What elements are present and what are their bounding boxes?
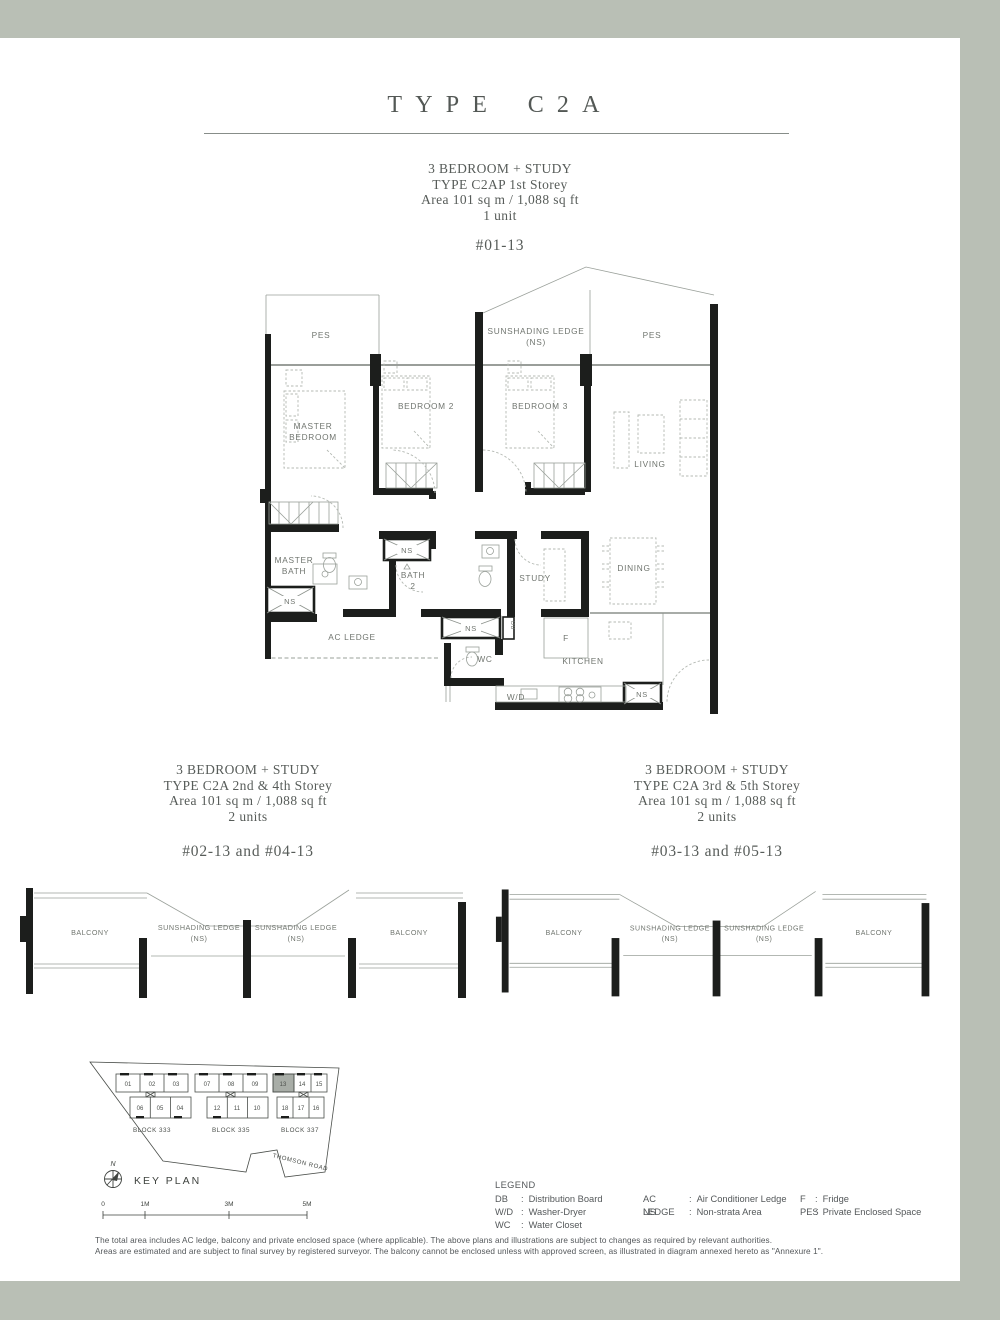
unit-02: 02 — [149, 1082, 156, 1088]
bath2-label: BATH — [401, 570, 425, 580]
top-border-band — [0, 0, 1000, 38]
unit-07: 07 — [204, 1082, 211, 1088]
balcony-diagram-3rd-5th: BALCONY SUNSHADING LEDGE (NS) SUNSHADING… — [494, 880, 941, 1000]
north-compass-icon — [105, 1171, 122, 1188]
sunshading-ledge-ns: (NS) — [756, 936, 772, 943]
legend-item-acledge: AC LEDGE : Air Conditioner Ledge — [643, 1193, 787, 1206]
washer-dryer-label: W/D — [507, 692, 525, 702]
unit-05: 05 — [157, 1106, 164, 1112]
legend-title: LEGEND — [495, 1180, 536, 1190]
floor-plan: PES SUNSHADING LEDGE (NS) PES MASTER BED… — [253, 262, 743, 737]
unit-09: 09 — [252, 1082, 259, 1088]
unit-12: 12 — [214, 1106, 221, 1112]
unit-18: 18 — [282, 1106, 289, 1112]
master-bath-label-2: BATH — [282, 566, 306, 576]
kitchen-label: KITCHEN — [562, 656, 603, 666]
master-bath-label: MASTER — [275, 555, 314, 565]
sunshading-ledge-ns: (NS) — [191, 934, 208, 943]
bottom-border-band — [0, 1281, 1000, 1320]
page-title: TYPE C2A — [0, 92, 1000, 119]
legend-item-db: DB : Distribution Board — [495, 1193, 603, 1206]
legend-separator: : — [521, 1206, 524, 1219]
unit-number-third: #03-13 and #05-13 — [567, 843, 867, 861]
legend-column-2: AC LEDGE : Air Conditioner Ledge NS : No… — [643, 1193, 787, 1219]
legend-separator: : — [521, 1219, 524, 1232]
unit-15: 15 — [316, 1082, 323, 1088]
legend-abbr: WC — [495, 1219, 521, 1232]
unit-04: 04 — [177, 1106, 184, 1112]
balcony-label: BALCONY — [390, 928, 428, 937]
scale-5m: 5M — [302, 1201, 311, 1208]
legend-item-ns: NS : Non-strata Area — [643, 1206, 787, 1219]
legend-separator: : — [689, 1206, 692, 1219]
legend-desc: Water Closet — [529, 1219, 582, 1232]
legend-column-1: DB : Distribution Board W/D : Washer-Dry… — [495, 1193, 603, 1232]
balcony-walls — [496, 889, 929, 996]
unit-11: 11 — [234, 1106, 241, 1112]
scale-3m: 3M — [224, 1201, 233, 1208]
legend-item-wc: WC : Water Closet — [495, 1219, 603, 1232]
unit-13: 13 — [280, 1082, 287, 1088]
legend-separator: : — [815, 1193, 818, 1206]
legend-desc: Fridge — [823, 1193, 849, 1206]
dining-label: DINING — [617, 563, 650, 573]
scale-1m: 1M — [140, 1201, 149, 1208]
sunshading-ledge-label: SUNSHADING LEDGE — [630, 925, 710, 932]
ac-ledge-label: AC LEDGE — [328, 632, 376, 642]
header-line: TYPE C2A 2nd & 4th Storey — [98, 778, 398, 794]
block-335-label: BLOCK 335 — [212, 1127, 250, 1134]
legend-abbr: AC LEDGE — [643, 1193, 689, 1206]
header-line: Area 101 sq m / 1,088 sq ft — [98, 793, 398, 809]
unit-number-second: #02-13 and #04-13 — [98, 843, 398, 861]
scale-0: 0 — [101, 1201, 105, 1208]
section-header-2nd-4th: 3 BEDROOM + STUDY TYPE C2A 2nd & 4th Sto… — [98, 762, 398, 824]
legend-abbr: DB — [495, 1193, 521, 1206]
disclaimer-line-2: Areas are estimated and are subject to f… — [95, 1247, 963, 1258]
unit-08: 08 — [228, 1082, 235, 1088]
unit-number-first: #01-13 — [0, 237, 1000, 255]
disclaimer-line-1: The total area includes AC ledge, balcon… — [95, 1236, 963, 1247]
sunshading-ledge-label: SUNSHADING LEDGE — [158, 923, 240, 932]
legend-item-f: F : Fridge — [800, 1193, 921, 1206]
unit-14: 14 — [299, 1082, 306, 1088]
header-line: Area 101 sq m / 1,088 sq ft — [0, 192, 1000, 208]
north-label: N — [110, 1161, 116, 1168]
header-line: TYPE C2AP 1st Storey — [0, 177, 1000, 193]
ns-label-bath2: NS — [401, 546, 413, 555]
unit-01: 01 — [125, 1082, 132, 1088]
ns-label-kitchen: NS — [636, 690, 648, 699]
title-rule — [204, 133, 789, 134]
ns-label-master-bath: NS — [284, 597, 296, 606]
scale-bar — [103, 1211, 307, 1219]
legend-desc: Air Conditioner Ledge — [697, 1193, 787, 1206]
master-bedroom-label: MASTER — [294, 421, 333, 431]
balcony-label: BALCONY — [856, 930, 893, 937]
legend-item-wd: W/D : Washer-Dryer — [495, 1206, 603, 1219]
block-337-label: BLOCK 337 — [281, 1127, 319, 1134]
legend-abbr: PES — [800, 1206, 815, 1219]
sunshading-ledge-label: SUNSHADING LEDGE — [488, 326, 585, 336]
header-line: TYPE C2A 3rd & 5th Storey — [567, 778, 867, 794]
legend-desc: Washer-Dryer — [529, 1206, 587, 1219]
key-plan: THOMSON ROAD — [78, 1044, 348, 1222]
legend-abbr: W/D — [495, 1206, 521, 1219]
pes-right-label: PES — [643, 330, 662, 340]
header-line: 1 unit — [0, 208, 1000, 224]
legend-abbr: F — [800, 1193, 815, 1206]
unit-10: 10 — [254, 1106, 261, 1112]
fridge-label: F — [563, 633, 569, 643]
sunshading-ledge-ns: (NS) — [288, 934, 305, 943]
brochure-page: TYPE C2A 3 BEDROOM + STUDY TYPE C2AP 1st… — [0, 0, 1000, 1320]
legend-desc: Distribution Board — [529, 1193, 603, 1206]
legend-desc: Private Enclosed Space — [823, 1206, 922, 1219]
legend-separator: : — [521, 1193, 524, 1206]
header-line: Area 101 sq m / 1,088 sq ft — [567, 793, 867, 809]
legend-separator: : — [689, 1193, 692, 1206]
sunshading-ledge-ns: (NS) — [662, 936, 678, 943]
header-line: 3 BEDROOM + STUDY — [567, 762, 867, 778]
keyplan-title: KEY PLAN — [134, 1175, 201, 1187]
balcony-diagram-2nd-4th: BALCONY SUNSHADING LEDGE (NS) SUNSHADING… — [18, 880, 478, 1000]
header-line: 2 units — [98, 809, 398, 825]
master-bedroom-label-2: BEDROOM — [289, 432, 337, 442]
ns-label-wc: NS — [465, 624, 477, 633]
legend-desc: Non-strata Area — [697, 1206, 762, 1219]
legend-abbr: NS — [643, 1206, 689, 1219]
unit-16: 16 — [313, 1106, 320, 1112]
furniture — [284, 361, 707, 639]
header-line: 3 BEDROOM + STUDY — [0, 161, 1000, 177]
balcony-label: BALCONY — [546, 930, 583, 937]
disclaimer: The total area includes AC ledge, balcon… — [95, 1236, 963, 1257]
legend-separator: : — [815, 1206, 818, 1219]
bedroom2-label: BEDROOM 2 — [398, 401, 454, 411]
wc-label: WC — [477, 654, 492, 664]
db-label: DB — [509, 621, 515, 630]
section-header-first-storey: 3 BEDROOM + STUDY TYPE C2AP 1st Storey A… — [0, 161, 1000, 223]
pes-left-label: PES — [312, 330, 331, 340]
sunshading-ledge-label: SUNSHADING LEDGE — [255, 923, 337, 932]
bath2-label-2: 2 — [410, 581, 415, 591]
unit-03: 03 — [173, 1082, 180, 1088]
bedroom3-label: BEDROOM 3 — [512, 401, 568, 411]
road-label: THOMSON ROAD — [272, 1153, 329, 1173]
header-line: 2 units — [567, 809, 867, 825]
balcony-label: BALCONY — [71, 928, 109, 937]
block-333-label: BLOCK 333 — [133, 1127, 171, 1134]
sunshading-ledge-label: SUNSHADING LEDGE — [724, 925, 804, 932]
header-line: 3 BEDROOM + STUDY — [98, 762, 398, 778]
study-label: STUDY — [519, 573, 551, 583]
legend-item-pes: PES : Private Enclosed Space — [800, 1206, 921, 1219]
legend-column-3: F : Fridge PES : Private Enclosed Space — [800, 1193, 921, 1219]
balcony-walls — [20, 888, 466, 998]
living-label: LIVING — [634, 459, 665, 469]
sunshading-ledge-ns-label: (NS) — [526, 337, 546, 347]
unit-17: 17 — [298, 1106, 305, 1112]
section-header-3rd-5th: 3 BEDROOM + STUDY TYPE C2A 3rd & 5th Sto… — [567, 762, 867, 824]
unit-06: 06 — [137, 1106, 144, 1112]
